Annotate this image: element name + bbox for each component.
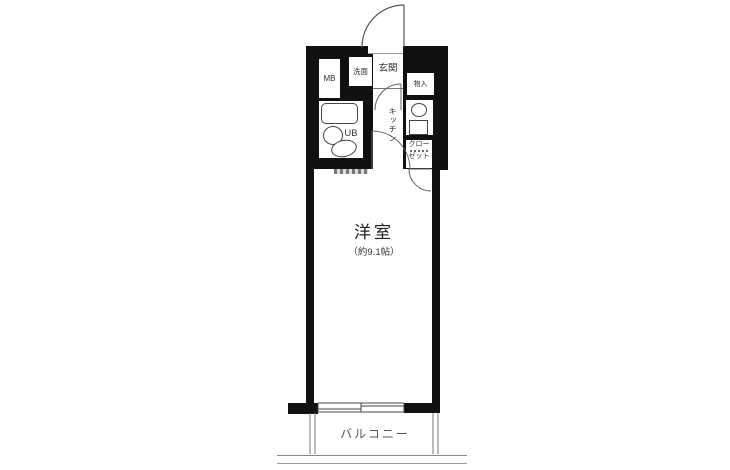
main-room-area bbox=[314, 169, 432, 403]
balcony-edge-line-2 bbox=[277, 463, 467, 464]
kitchen-label: キッチン bbox=[387, 107, 398, 143]
entrance-label: 玄関 bbox=[374, 60, 402, 74]
storage-label: 物入 bbox=[406, 72, 435, 96]
wall-left bbox=[306, 46, 314, 414]
closet-rod-icon bbox=[410, 150, 428, 152]
bath-threshold-strip bbox=[334, 169, 368, 174]
entrance-threshold-line bbox=[368, 53, 403, 54]
closet-label-line2: ゼット bbox=[406, 153, 432, 161]
kitchen-sink-icon bbox=[411, 103, 427, 117]
unit-bath-label: UB bbox=[340, 126, 362, 140]
meter-box-label: MB bbox=[318, 58, 341, 99]
western-room-label: 洋室 bbox=[343, 220, 405, 240]
balcony-label: バルコニー bbox=[332, 426, 418, 441]
washroom-label: 洗面 bbox=[348, 56, 373, 87]
entrance-step-line bbox=[373, 88, 403, 89]
bathtub-icon bbox=[321, 103, 358, 124]
balcony-window-icon bbox=[318, 403, 404, 412]
western-room-size-label: （約9.1帖） bbox=[338, 244, 410, 257]
wall-top-left bbox=[306, 46, 368, 54]
floor-plan: 玄関 MB 洗面 UB 物入 キッチン クロー ゼット 洋室 （約9.1帖） バ… bbox=[0, 0, 730, 470]
balcony-edge-line-1 bbox=[277, 455, 467, 456]
closet-label: クロー ゼット bbox=[406, 141, 432, 161]
entrance-door-icon bbox=[362, 5, 404, 47]
closet-label-line1: クロー bbox=[406, 141, 432, 149]
stove-icon bbox=[409, 120, 428, 135]
wall-foot-bottom-left bbox=[288, 403, 318, 414]
wall-right-lower bbox=[432, 162, 440, 380]
